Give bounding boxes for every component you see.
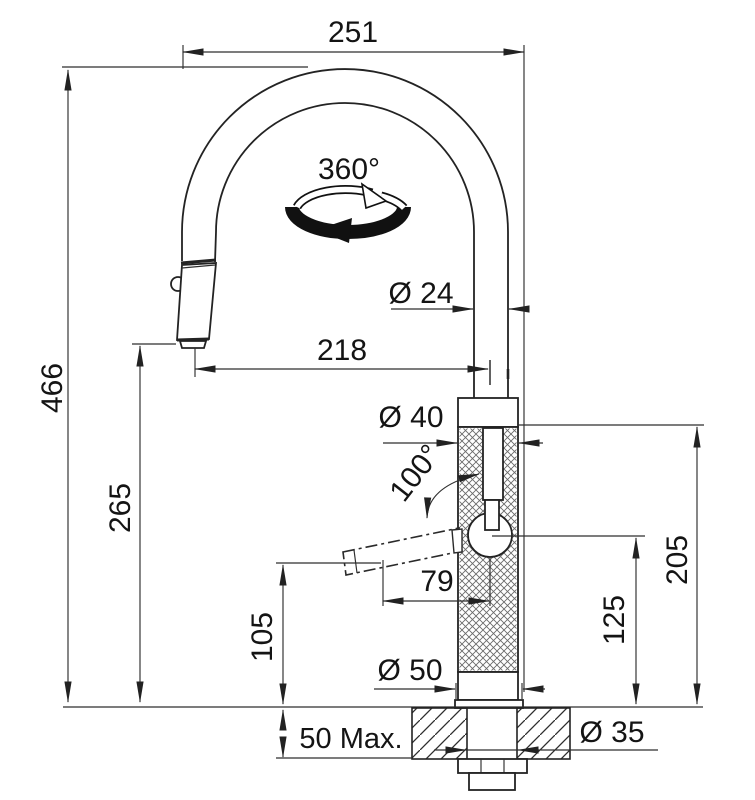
lever-handle-seam	[354, 550, 357, 573]
countertop-section-right	[517, 708, 570, 759]
cartridge-slot	[483, 428, 503, 500]
dim-label-spout-width: 251	[328, 16, 378, 49]
body-lower-section	[458, 672, 518, 700]
spray-aerator-tip	[180, 341, 206, 348]
dim-label-spout-height: 265	[104, 483, 137, 533]
dim-label-spout-reach: 218	[317, 334, 367, 367]
dim-label-body-diameter: Ø 40	[378, 401, 443, 434]
faucet-technical-drawing: 251 466 265 218 Ø 24 Ø 40 100° 79 1	[0, 0, 755, 800]
dim-label-lever-projection: 79	[420, 565, 453, 598]
cartridge-stem	[485, 500, 499, 530]
lever-handle-hub	[452, 529, 462, 553]
rotation-arrowhead-black	[316, 218, 352, 243]
drawing-canvas: 251 466 265 218 Ø 24 Ø 40 100° 79 1	[0, 0, 755, 800]
spray-head-body	[177, 263, 216, 340]
spray-hose-neck	[182, 232, 216, 262]
dim-label-lever-angle: 100°	[383, 439, 447, 508]
dim-label-lever-clearance: 105	[246, 612, 279, 662]
annotation-label-swivel: 360°	[318, 153, 380, 186]
dimension-annotations: 251 466 265 218 Ø 24 Ø 40 100° 79 1	[36, 16, 704, 758]
dim-label-tube-diameter: Ø 24	[388, 277, 453, 310]
spray-head-bottom	[177, 339, 209, 340]
dim-label-deck-thickness: 50 Max.	[299, 723, 402, 755]
dim-label-pivot-height: 125	[598, 595, 631, 645]
shank-tailpiece	[469, 773, 515, 790]
body-collar	[458, 398, 518, 427]
dim-label-overall-height: 466	[36, 363, 69, 413]
dim-label-body-height: 205	[661, 535, 694, 585]
dim-label-hole-diameter: Ø 35	[579, 716, 644, 749]
dim-label-base-diameter: Ø 50	[377, 654, 442, 687]
mounting-nut	[458, 759, 527, 773]
rotation-360-icon	[292, 184, 404, 243]
countertop-section-left	[412, 708, 467, 759]
